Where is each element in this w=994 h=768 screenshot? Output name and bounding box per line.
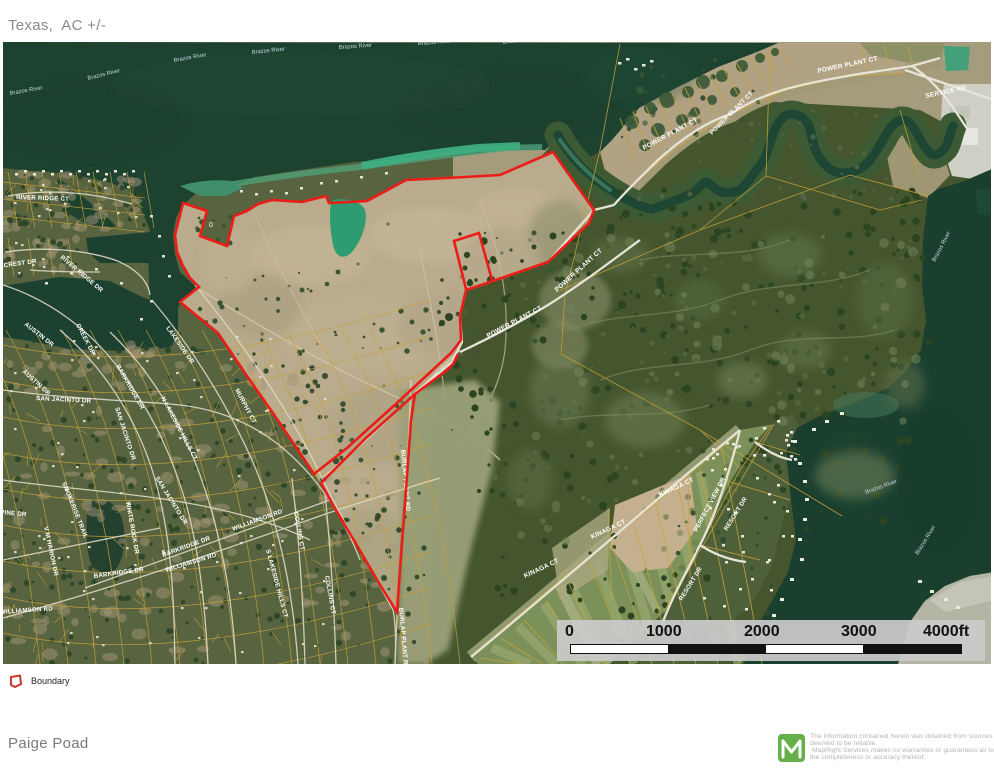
svg-text:0: 0 [209, 222, 213, 229]
